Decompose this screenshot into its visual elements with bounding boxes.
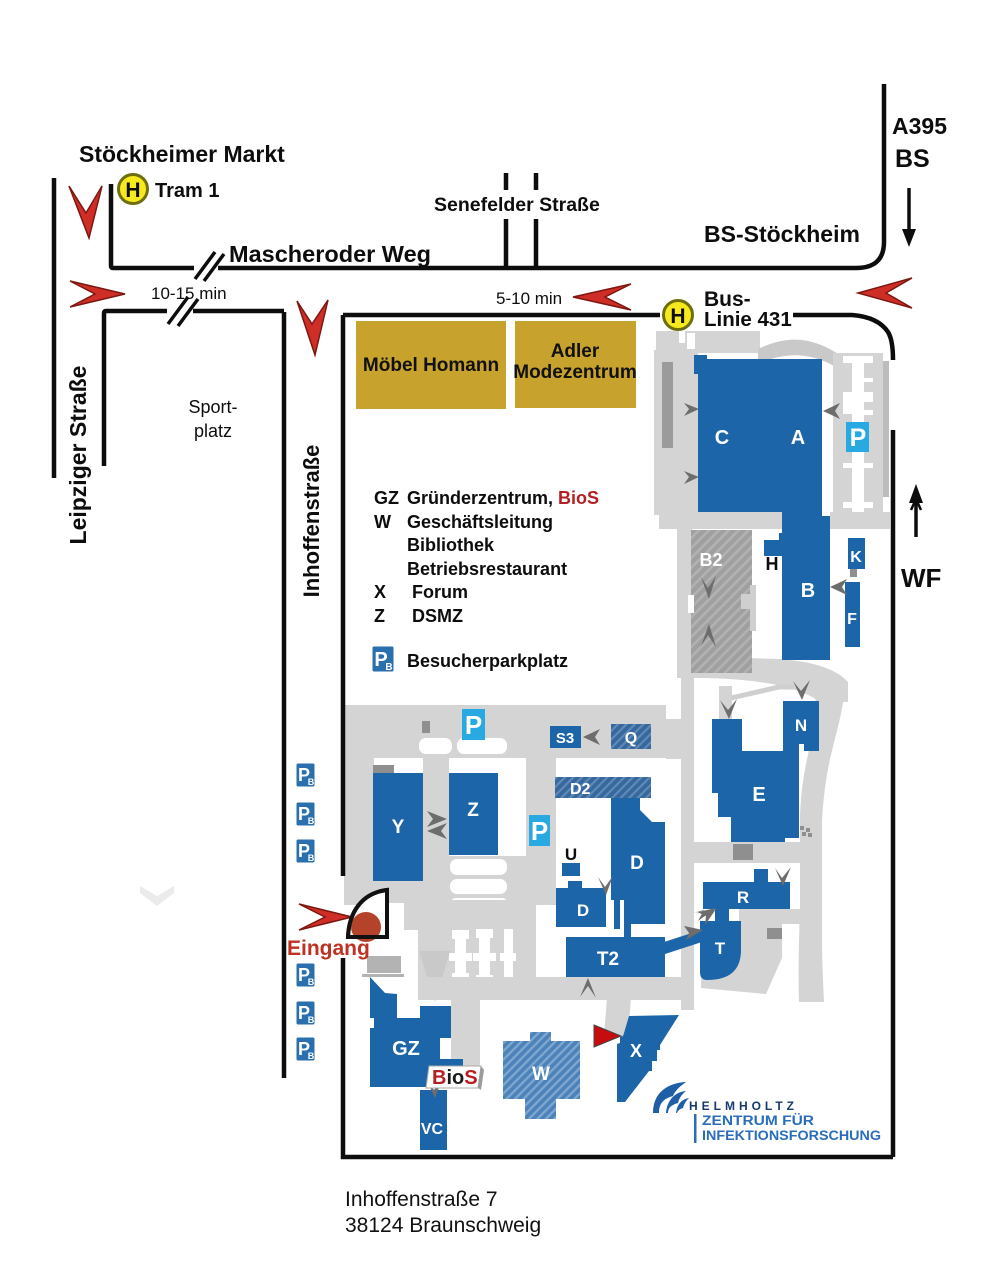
svg-text:platz: platz: [194, 421, 232, 441]
svg-text:Leipziger Straße: Leipziger Straße: [65, 366, 91, 545]
svg-text:Mascheroder Weg: Mascheroder Weg: [229, 241, 431, 267]
svg-text:Senefelder Straße: Senefelder Straße: [434, 194, 600, 216]
svg-text:INFEKTIONSFORSCHUNG: INFEKTIONSFORSCHUNG: [702, 1128, 881, 1143]
svg-text:Geschäftsleitung: Geschäftsleitung: [407, 512, 553, 532]
svg-text:WF: WF: [901, 563, 941, 593]
svg-text:HELMHOLTZ: HELMHOLTZ: [689, 1099, 794, 1113]
svg-text:T2: T2: [597, 949, 619, 970]
svg-text:R: R: [737, 888, 749, 907]
svg-text:BS: BS: [895, 145, 930, 173]
svg-text:Z: Z: [374, 606, 385, 626]
svg-text:D: D: [577, 901, 589, 920]
svg-text:H: H: [766, 554, 779, 574]
svg-text:X: X: [374, 582, 386, 602]
svg-text:X: X: [630, 1041, 642, 1061]
svg-text:Tram 1: Tram 1: [155, 180, 219, 202]
svg-text:Linie 431: Linie 431: [704, 308, 792, 331]
svg-text:B2: B2: [699, 550, 722, 570]
svg-text:10-15 min: 10-15 min: [151, 284, 227, 303]
svg-text:E: E: [752, 784, 765, 806]
svg-text:DSMZ: DSMZ: [412, 606, 463, 626]
svg-text:Modezentrum: Modezentrum: [513, 362, 637, 383]
svg-text:B: B: [308, 1051, 315, 1061]
svg-text:Inhoffenstraße: Inhoffenstraße: [299, 445, 324, 598]
svg-text:H: H: [125, 179, 140, 202]
svg-text:Z: Z: [467, 800, 479, 821]
svg-text:C: C: [715, 427, 729, 449]
svg-text:B: B: [385, 662, 392, 673]
svg-text:P: P: [465, 710, 482, 740]
svg-text:S3: S3: [556, 730, 574, 747]
svg-text:BS-Stöckheim: BS-Stöckheim: [704, 221, 860, 247]
svg-text:38124 Braunschweig: 38124 Braunschweig: [345, 1214, 541, 1237]
svg-text:B: B: [308, 977, 315, 987]
svg-text:U: U: [565, 845, 577, 864]
svg-text:F: F: [847, 611, 857, 628]
svg-text:VC: VC: [421, 1121, 444, 1138]
svg-text:Besucherparkplatz: Besucherparkplatz: [407, 651, 568, 671]
svg-text:5-10 min: 5-10 min: [496, 289, 562, 308]
svg-text:B: B: [801, 580, 815, 602]
svg-text:Forum: Forum: [412, 582, 468, 602]
svg-text:GZ: GZ: [392, 1038, 420, 1060]
svg-text:P: P: [531, 816, 548, 846]
svg-text:BioS: BioS: [432, 1067, 478, 1089]
svg-text:Y: Y: [392, 817, 405, 838]
svg-text:A395: A395: [892, 113, 947, 139]
svg-text:B: B: [308, 1015, 315, 1025]
svg-text:D2: D2: [570, 781, 591, 798]
svg-text:T: T: [715, 939, 726, 958]
svg-text:K: K: [850, 549, 862, 566]
svg-text:GZ: GZ: [374, 488, 399, 508]
svg-text:Gründerzentrum, BioS: Gründerzentrum, BioS: [407, 488, 599, 508]
svg-text:Bibliothek: Bibliothek: [407, 535, 495, 555]
svg-text:B: B: [308, 816, 315, 826]
svg-text:B: B: [308, 853, 315, 863]
svg-text:P: P: [850, 424, 867, 452]
svg-text:H: H: [670, 305, 685, 328]
svg-text:N: N: [795, 716, 807, 735]
svg-text:Inhoffenstraße 7: Inhoffenstraße 7: [345, 1188, 498, 1211]
svg-text:A: A: [791, 427, 805, 449]
svg-text:Eingang: Eingang: [287, 937, 370, 960]
svg-text:ZENTRUM FÜR: ZENTRUM FÜR: [702, 1113, 814, 1128]
svg-text:D: D: [630, 853, 644, 874]
svg-text:Adler: Adler: [551, 341, 600, 362]
svg-text:Q: Q: [625, 730, 637, 747]
svg-text:Betriebsrestaurant: Betriebsrestaurant: [407, 559, 567, 579]
svg-text:B: B: [308, 777, 315, 787]
svg-text:W: W: [532, 1064, 550, 1085]
svg-text:Sport-: Sport-: [188, 397, 237, 417]
svg-text:Stöckheimer Markt: Stöckheimer Markt: [79, 141, 285, 167]
svg-text:W: W: [374, 512, 391, 532]
svg-text:Möbel Homann: Möbel Homann: [363, 355, 499, 376]
